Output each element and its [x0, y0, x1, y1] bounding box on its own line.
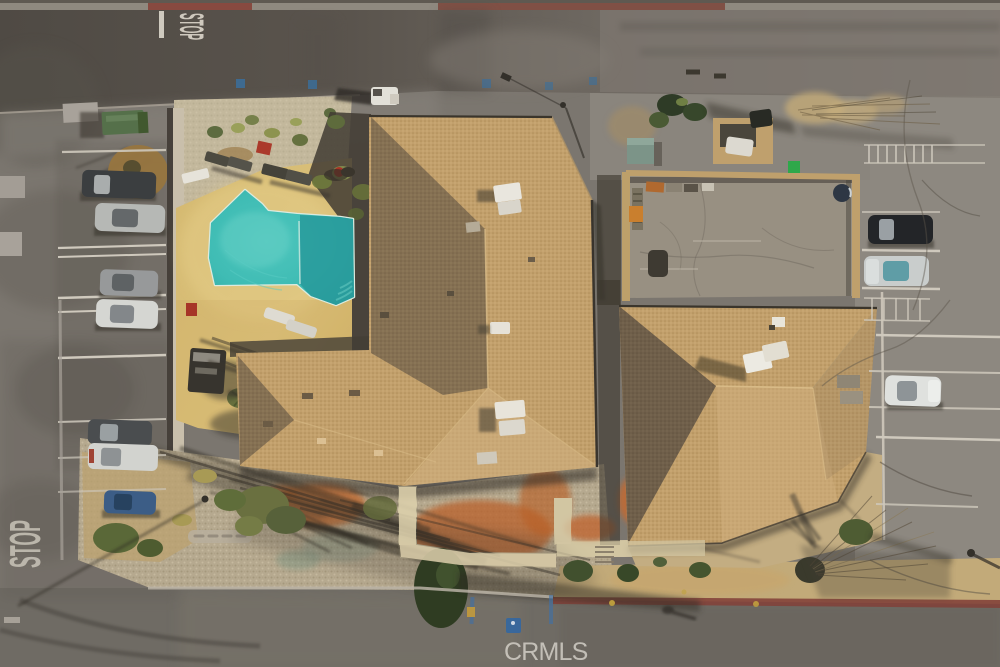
- svg-text:STOP: STOP: [1, 520, 50, 568]
- svg-text:STOP: STOP: [172, 13, 210, 40]
- svg-text:CRMLS: CRMLS: [504, 638, 588, 666]
